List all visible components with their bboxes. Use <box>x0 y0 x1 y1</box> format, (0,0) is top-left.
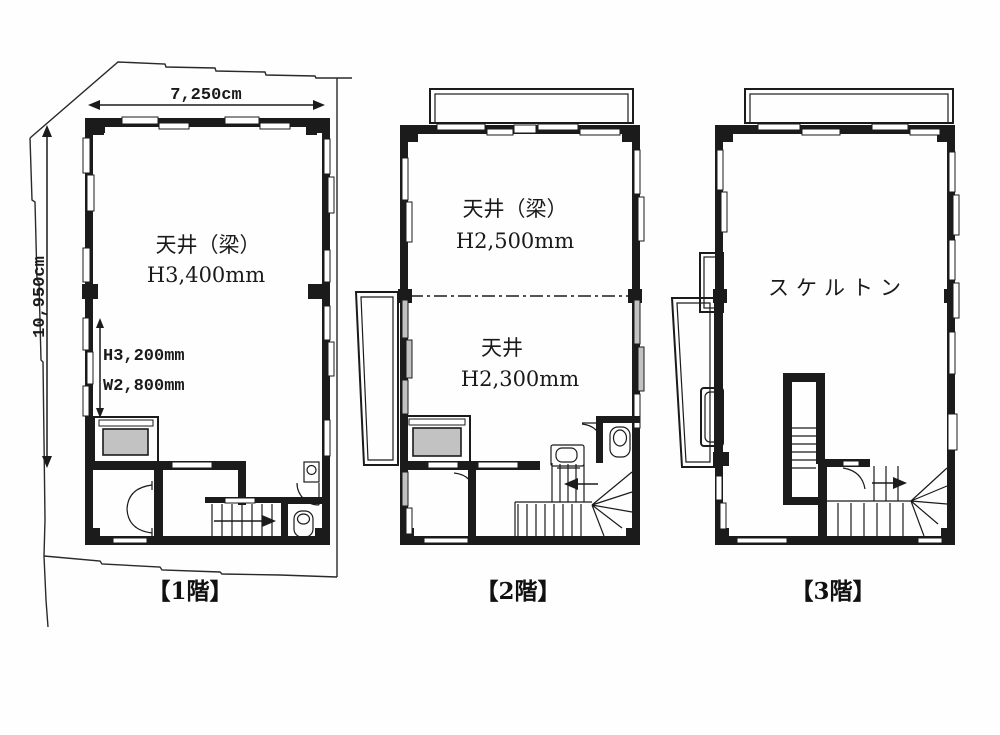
floor-1-elevator <box>94 417 158 462</box>
floor-plan-sheet: 7,250cm 10,950cm <box>0 0 1000 735</box>
floor-2-balcony-top <box>430 89 633 123</box>
floor-1-ceiling-label: 天井（梁） <box>156 233 261 257</box>
floor-3-label: 【3階】 <box>790 578 875 605</box>
floor-1-opening-dimension <box>96 318 104 418</box>
floor-1-opening-width: W2,800mm <box>103 377 185 396</box>
floor-2-upper-ceiling-label: 天井（梁） <box>463 197 568 221</box>
floor-2-balcony-left <box>356 292 398 465</box>
floor-3-pipe-space-upper <box>700 253 723 312</box>
floor-2-stairs <box>515 463 632 536</box>
floor-plan-drawing: 7,250cm 10,950cm <box>0 0 1000 735</box>
floor-3-area-label: スケルトン <box>768 276 908 300</box>
floor-1-plan: 天井（梁） H3,400mm H3,200mm W2,800mm 【1階】 <box>82 117 334 605</box>
floor-2-label: 【2階】 <box>475 578 560 605</box>
floor-1-stairs <box>212 504 276 536</box>
floor-3-plan: スケルトン 【3階】 <box>672 89 959 605</box>
floor-1-ceiling-height: H3,400mm <box>147 263 265 287</box>
site-width-label: 7,250cm <box>170 86 241 105</box>
floor-2-upper-ceiling-height: H2,500mm <box>456 229 574 253</box>
site-height-label: 10,950cm <box>31 256 50 338</box>
floor-2-elevator <box>404 416 470 463</box>
dimension-height: 10,950cm <box>31 125 52 468</box>
floor-2-lower-ceiling-height: H2,300mm <box>461 367 579 391</box>
floor-3-stairs <box>827 466 947 536</box>
floor-1-opening-height: H3,200mm <box>103 347 185 366</box>
floor-2-plan: 天井（梁） H2,500mm 天井 H2,300mm 【2階】 <box>356 89 644 605</box>
floor-3-balcony-top <box>745 89 953 123</box>
floor-2-lower-ceiling-label: 天井 <box>481 336 523 360</box>
floor-1-label: 【1階】 <box>147 578 232 605</box>
floor-2-toilet <box>610 427 630 457</box>
dimension-width: 7,250cm <box>88 86 325 110</box>
floor-1-entry-doors <box>127 481 152 537</box>
floor-3-stair-door <box>843 468 865 489</box>
